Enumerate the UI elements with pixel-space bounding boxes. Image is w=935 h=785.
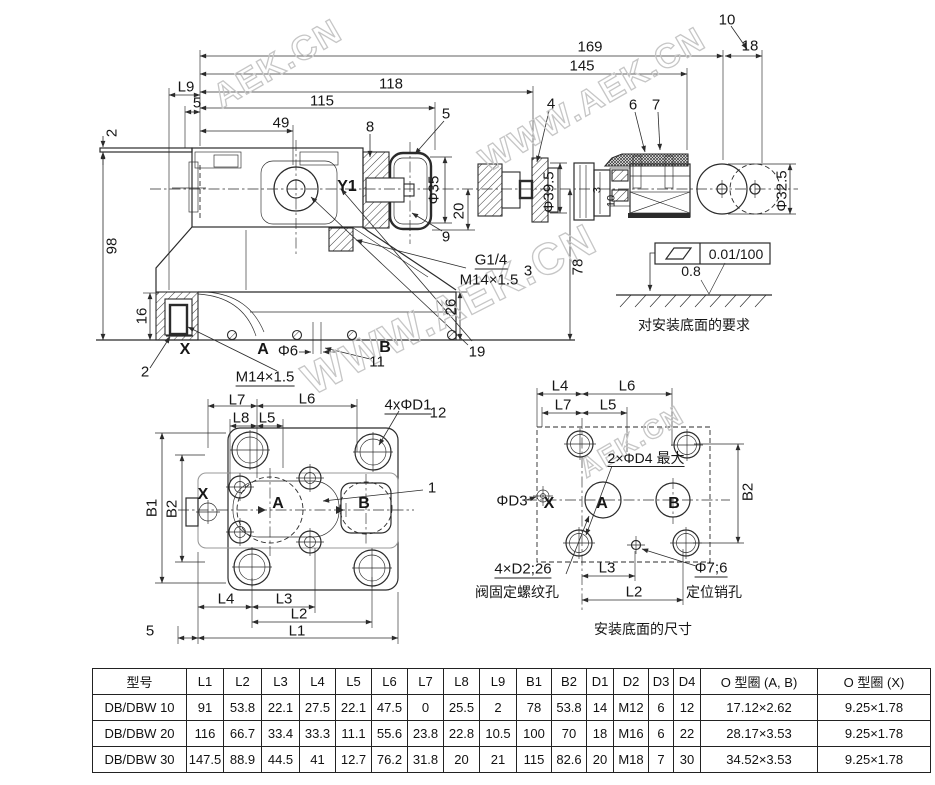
screws-note-cn: 阀固定螺纹孔: [475, 585, 559, 599]
pin-note-cn: 定位销孔: [686, 585, 742, 599]
dim-L7-bv: L7: [229, 393, 246, 408]
value-cell: 9.25×1.78: [818, 747, 931, 773]
dim-L5-mv: L5: [600, 398, 617, 413]
item-6: 6: [629, 98, 637, 113]
value-cell: M12: [614, 695, 649, 721]
dim-phi6: Φ6: [278, 344, 298, 359]
value-cell: 55.6: [372, 721, 408, 747]
table-body: DB/DBW 109153.822.127.522.147.5025.52785…: [93, 695, 931, 773]
item-3: 3: [524, 264, 532, 279]
dim-18: 18: [742, 39, 759, 54]
port-x-mv: X: [544, 496, 555, 512]
item-5: 5: [442, 107, 450, 122]
value-cell: 33.3: [300, 721, 336, 747]
item-1: 1: [428, 481, 436, 496]
table-header-cell: L7: [408, 669, 444, 695]
dim-98: 98: [105, 238, 120, 255]
value-cell: 44.5: [262, 747, 300, 773]
dim-16: 16: [135, 308, 150, 325]
table-header-cell: L9: [480, 669, 517, 695]
value-cell: 34.52×3.53: [701, 747, 818, 773]
value-cell: 7: [649, 747, 674, 773]
item-11: 11: [369, 355, 385, 370]
dim-L7-mv: L7: [555, 398, 572, 413]
technical-drawing: [0, 0, 935, 660]
dim-2-plate: 2: [105, 129, 120, 137]
dim-L5-bv: L5: [259, 411, 276, 426]
value-cell: 23.8: [408, 721, 444, 747]
value-cell: 78: [517, 695, 552, 721]
port-a-mv: A: [596, 496, 608, 512]
table-header-cell: L6: [372, 669, 408, 695]
value-cell: 22.1: [336, 695, 372, 721]
value-cell: 22.1: [262, 695, 300, 721]
value-cell: 11.1: [336, 721, 372, 747]
table-header-cell: D1: [587, 669, 614, 695]
datasheet-page: AEK.CN WWW.AEK.CN WWW.AEK.CN AEK.CN 169 …: [0, 0, 935, 785]
dim-26: 26: [444, 299, 459, 316]
table-header-cell: B1: [517, 669, 552, 695]
value-cell: 22: [674, 721, 701, 747]
dim-78: 78: [571, 259, 586, 276]
dim-B1-bv: B1: [145, 499, 160, 517]
value-cell: 6: [649, 695, 674, 721]
value-cell: 14: [587, 695, 614, 721]
value-cell: 0: [408, 695, 444, 721]
value-cell: M16: [614, 721, 649, 747]
value-cell: 147.5: [187, 747, 224, 773]
table-header-cell: L1: [187, 669, 224, 695]
table-header-cell: L8: [444, 669, 480, 695]
pin-note: Φ7;6: [695, 561, 728, 578]
dim-L6-bv: L6: [299, 392, 316, 407]
value-cell: 18: [587, 721, 614, 747]
table-header-cell: D2: [614, 669, 649, 695]
value-cell: 41: [300, 747, 336, 773]
port-a-main: A: [257, 342, 269, 358]
value-cell: 10.5: [480, 721, 517, 747]
value-cell: 66.7: [224, 721, 262, 747]
item-9: 9: [442, 230, 450, 245]
thread-note-x: M14×1.5: [236, 370, 295, 387]
flatness-caption: 对安装底面的要求: [638, 318, 750, 332]
dim-phi39-5: Φ39.5: [542, 171, 557, 212]
port-x-bv: X: [198, 487, 209, 503]
dim-5-bv: 5: [146, 624, 154, 639]
value-cell: 20: [587, 747, 614, 773]
port-b-mv: B: [668, 496, 680, 512]
value-cell: 88.9: [224, 747, 262, 773]
dim-L2-bv: L2: [291, 607, 308, 622]
screws-note: 4×D2;26: [494, 562, 551, 579]
value-cell: M18: [614, 747, 649, 773]
spec-table: 型号L1L2L3L4L5L6L7L8L9B1B2D1D2D3D4O 型圈 (A,…: [92, 668, 931, 773]
dim-L6-mv: L6: [619, 379, 636, 394]
table-header-cell: O 型圈 (X): [818, 669, 931, 695]
dim-L3-mv: L3: [599, 561, 616, 576]
d4-max-note: 2×ΦD4 最大: [608, 451, 685, 467]
value-cell: 12.7: [336, 747, 372, 773]
value-cell: 33.4: [262, 721, 300, 747]
dim-115: 115: [310, 94, 334, 109]
port-x-main: X: [180, 342, 191, 358]
table-header-cell: D3: [649, 669, 674, 695]
table-header-cell: B2: [552, 669, 587, 695]
thread-note-m14: M14×1.5: [460, 273, 519, 288]
table-header-cell: L3: [262, 669, 300, 695]
value-cell: 116: [187, 721, 224, 747]
dim-145: 145: [569, 59, 594, 74]
item-19: 19: [469, 345, 486, 360]
value-cell: 91: [187, 695, 224, 721]
item-8: 8: [366, 120, 374, 135]
port-y1: Y1: [337, 179, 357, 195]
value-cell: 53.8: [224, 695, 262, 721]
port-b-main: B: [379, 340, 391, 356]
value-cell: 20: [444, 747, 480, 773]
table-header-cell: L2: [224, 669, 262, 695]
value-cell: 31.8: [408, 747, 444, 773]
thread-note-g14: G1/4: [475, 253, 508, 270]
table-row: DB/DBW 109153.822.127.522.147.5025.52785…: [93, 695, 931, 721]
value-cell: 47.5: [372, 695, 408, 721]
port-a-bv: A: [272, 496, 284, 512]
value-cell: 22.8: [444, 721, 480, 747]
roughness-value: 0.8: [681, 264, 700, 278]
item-4: 4: [547, 97, 555, 112]
value-cell: 53.8: [552, 695, 587, 721]
dim-phi35: Φ35: [427, 176, 442, 205]
value-cell: 2: [480, 695, 517, 721]
table-row: DB/DBW 30147.588.944.54112.776.231.82021…: [93, 747, 931, 773]
item-12: 12: [430, 406, 447, 421]
value-cell: 12: [674, 695, 701, 721]
model-cell: DB/DBW 10: [93, 695, 187, 721]
table-header-cell: L4: [300, 669, 336, 695]
value-cell: 30: [674, 747, 701, 773]
dim-L1-bv: L1: [289, 624, 306, 639]
flatness-tolerance: 0.01/100: [709, 247, 764, 261]
value-cell: 100: [517, 721, 552, 747]
value-cell: 115: [517, 747, 552, 773]
dim-2-x: 2: [141, 365, 149, 380]
value-cell: 27.5: [300, 695, 336, 721]
dim-169: 169: [577, 40, 602, 55]
dim-10-solenoid: 10: [607, 195, 618, 207]
model-cell: DB/DBW 20: [93, 721, 187, 747]
dim-L3-bv: L3: [276, 592, 293, 607]
dim-20: 20: [452, 203, 467, 220]
value-cell: 28.17×3.53: [701, 721, 818, 747]
item-10: 10: [719, 13, 736, 28]
dim-3-solenoid: 3: [593, 187, 604, 193]
dim-118: 118: [379, 77, 403, 92]
value-cell: 70: [552, 721, 587, 747]
d3-note: ΦD3: [496, 494, 527, 509]
dim-L9: L9: [178, 80, 195, 95]
table-header-cell: L5: [336, 669, 372, 695]
port-b-bv: B: [358, 496, 370, 512]
dim-49: 49: [273, 116, 290, 131]
dim-L4-bv: L4: [218, 592, 235, 607]
dim-L8-bv: L8: [233, 411, 250, 426]
value-cell: 17.12×2.62: [701, 695, 818, 721]
value-cell: 21: [480, 747, 517, 773]
value-cell: 76.2: [372, 747, 408, 773]
value-cell: 25.5: [444, 695, 480, 721]
value-cell: 9.25×1.78: [818, 721, 931, 747]
dim-B2-mv: B2: [741, 483, 756, 501]
dim-L4-mv: L4: [552, 379, 569, 394]
dim-B2-bv: B2: [165, 500, 180, 518]
value-cell: 82.6: [552, 747, 587, 773]
value-cell: 6: [649, 721, 674, 747]
mounting-caption: 安装底面的尺寸: [594, 622, 692, 636]
dim-phi32-5: Φ32.5: [775, 170, 790, 211]
table-row: DB/DBW 2011666.733.433.311.155.623.822.8…: [93, 721, 931, 747]
item-7: 7: [652, 98, 660, 113]
table-header-row: 型号L1L2L3L4L5L6L7L8L9B1B2D1D2D3D4O 型圈 (A,…: [93, 669, 931, 695]
model-cell: DB/DBW 30: [93, 747, 187, 773]
table-header-cell: O 型圈 (A, B): [701, 669, 818, 695]
table-header-cell: D4: [674, 669, 701, 695]
holes-note-bv: 4xΦD1: [385, 398, 432, 415]
table-header-cell: 型号: [93, 669, 187, 695]
value-cell: 9.25×1.78: [818, 695, 931, 721]
dim-5-left: 5: [193, 96, 201, 111]
dim-L2-mv: L2: [626, 585, 643, 600]
